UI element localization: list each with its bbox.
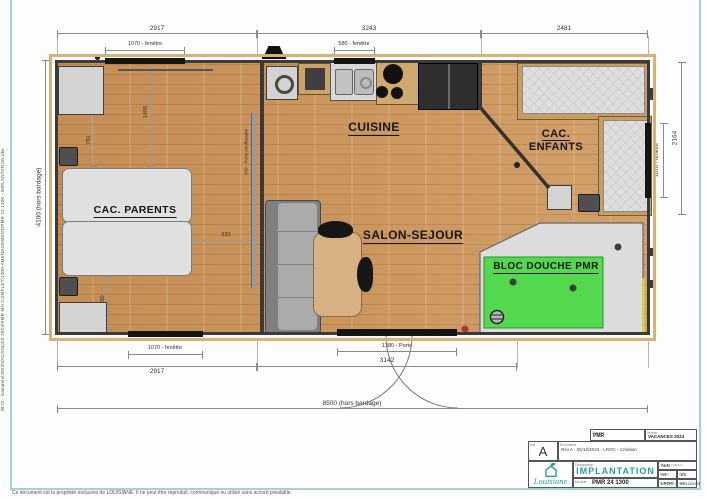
label-enfants-line1: CAC. (542, 128, 571, 141)
tb-title-value: IMPLANTATION (574, 465, 657, 477)
window-bottom-parents (128, 331, 203, 337)
dim-line-window-top-1 (105, 50, 185, 51)
shower-yellow-edge (642, 278, 645, 333)
ext-line (57, 36, 58, 57)
tb-cell-date: Date 05/12/2023 (677, 479, 697, 488)
page-border-left (10, 0, 12, 489)
louisiane-house-icon (543, 463, 559, 477)
tb-cell-logo: Louisiane (528, 461, 573, 488)
roof-vent-icon (264, 46, 284, 56)
label-salon: SALON-SEJOUR (363, 228, 463, 244)
dim-label-window-top-1: 1070 - fenêtre (128, 41, 162, 47)
tb-date-value: 05/12/2023 (680, 481, 700, 486)
dim-line-top-3 (481, 33, 648, 34)
door-stop-red (462, 326, 469, 333)
tb-annee-value: VACANCES 2024 (648, 434, 684, 439)
door-handle-icon (514, 162, 520, 168)
curtain-rail (118, 69, 213, 71)
tb-format-value: A3 (661, 472, 667, 477)
ext-line (257, 36, 258, 57)
tb-model-label: Modèle (575, 480, 586, 484)
tb-cell-gamme: Gamme PMR (590, 429, 645, 441)
exterior-knob-1 (648, 88, 655, 100)
tb-cell-indice: Ind. A (528, 441, 558, 461)
tb-cell-model: Modèle PMR 24 1300 (573, 478, 658, 488)
dim-label-top-3: 2481 (557, 25, 571, 32)
dim-label-right-height: 2164 (672, 131, 679, 145)
tb-cell-title: Désignation IMPLANTATION (573, 461, 658, 478)
dim-line-window-right (663, 123, 664, 198)
ext-line (648, 36, 649, 57)
tb-cell-folio: Folio 1/1 (677, 470, 697, 479)
louisiane-wordmark: Louisiane (529, 476, 572, 486)
dim-line-right-height (681, 62, 682, 215)
tb-folio-value: 1/1 (680, 472, 686, 477)
page-border-right (699, 0, 701, 489)
entry-door-leaf (337, 329, 457, 336)
wall-right-partition (478, 60, 482, 110)
door-swing-arc-left (340, 336, 412, 408)
tb-cell-annee: Année VACANCES 2024 (645, 429, 697, 441)
dim-label-top-1: 2917 (150, 25, 164, 32)
tb-evo-label: Évolutions (560, 443, 576, 447)
dim-label-top-2: 3243 (362, 25, 376, 32)
shower-drain-icon (491, 311, 504, 324)
dim-label-total-height: 4100 (hors bardage) (36, 168, 43, 227)
window-right-enfants (645, 123, 651, 198)
tb-indice-value: A (529, 442, 557, 460)
label-cuisine: CUISINE (348, 120, 399, 136)
window-top-kitchen (334, 58, 375, 64)
exterior-knob-3 (648, 280, 655, 288)
copyright-footer: Ce document est la propriété exclusive d… (12, 490, 292, 496)
sliding-door-panel (251, 113, 256, 288)
shower-fixture-3 (615, 244, 622, 251)
label-enfants: CAC. ENFANTS (529, 128, 583, 153)
label-douche: BLOC DOUCHE PMR (493, 261, 598, 274)
dim-line-window-top-2 (334, 50, 375, 51)
tb-evo-value: Rév.A - 05/12/2023 - LROC - Création (561, 447, 637, 452)
drawing-page: W:\3 - Gammes\2023\VACANCES 2023\PMR MH … (0, 0, 707, 500)
tb-charge-value: ALN (661, 463, 670, 468)
file-path-sidebar: W:\3 - Gammes\2023\VACANCES 2023\PMR MH … (0, 110, 10, 450)
dim-line-total-height (45, 60, 46, 335)
tb-dess-value: LROC (661, 481, 674, 486)
shower-fixture-2 (570, 285, 577, 292)
window-top-parents (105, 58, 185, 64)
tb-cell-dessinateur: Dessinateur LROC (658, 479, 677, 488)
tb-model-value: PMR 24 1300 (592, 480, 629, 486)
tb-cell-format: Format A3 (658, 470, 677, 479)
dim-line-top-2 (257, 33, 481, 34)
label-enfants-line2: ENFANTS (529, 141, 583, 153)
exterior-knob-2 (648, 248, 655, 256)
tb-gamme-value: PMR (593, 433, 604, 439)
shower-fixture-1 (510, 279, 517, 286)
wall-parents-partition (260, 60, 264, 335)
dim-line-top-1 (57, 33, 257, 34)
roof-vent-base (262, 56, 286, 59)
plan-overlay (55, 60, 655, 420)
tb-cell-evolutions: Évolutions Rév.A - 05/12/2023 - LROC - C… (558, 441, 697, 461)
label-parents: CAC. PARENTS (94, 204, 177, 218)
tb-cell-charge: Chargé d'affaires ALN (658, 461, 697, 470)
ext-line (481, 36, 482, 57)
door-swing-arc-right (386, 336, 458, 408)
dim-label-window-top-2: 580 - fenêtre (338, 41, 369, 47)
